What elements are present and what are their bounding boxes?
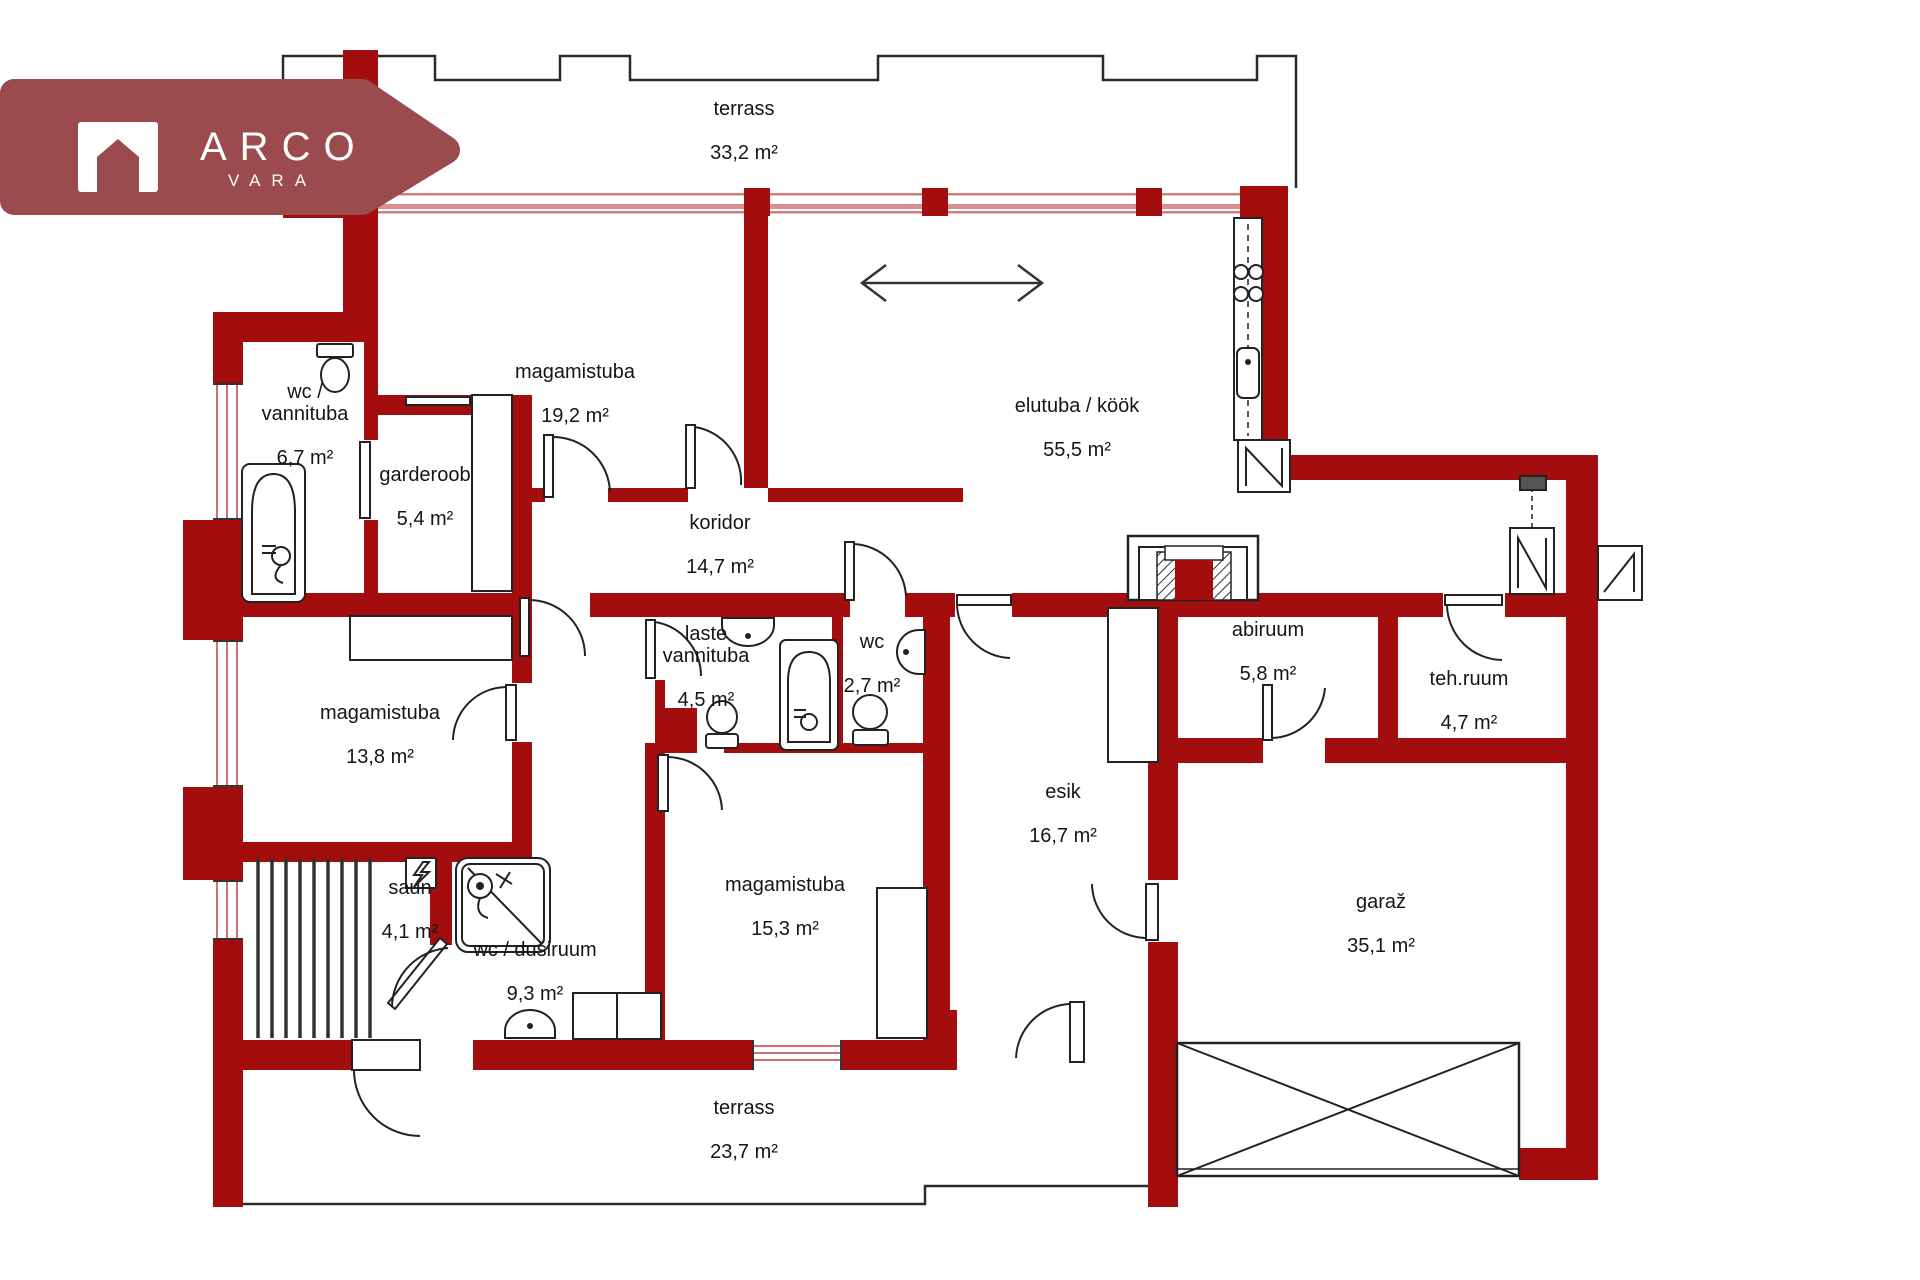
- wardrobe: [877, 888, 927, 1038]
- room-label-abiruum: abiruum 5,8 m²: [1232, 597, 1304, 707]
- room-label-laste-vannituba: laste vannituba 4,5 m²: [663, 601, 750, 733]
- room-area: 55,5 m²: [1015, 439, 1140, 461]
- room-name: wc / duširuum: [473, 939, 596, 961]
- room-name: garderoob: [379, 464, 470, 486]
- vent-box: [1598, 546, 1642, 600]
- brand-logo-icon: [78, 122, 158, 192]
- room-label-terrass-bottom: terrass 23,7 m²: [710, 1075, 778, 1185]
- room-label-teh-ruum: teh.ruum 4,7 m²: [1430, 646, 1509, 756]
- appliance-icon: [1238, 440, 1290, 492]
- room-name: wc: [844, 631, 901, 653]
- room-label-wc-dusiruum: wc / duširuum 9,3 m²: [473, 917, 596, 1027]
- room-area: 14,7 m²: [686, 556, 754, 578]
- sink-icon: [897, 630, 925, 674]
- room-area: 5,8 m²: [1232, 663, 1304, 685]
- top-window-band: [345, 192, 1240, 214]
- water-heater-icon: [1510, 476, 1554, 594]
- room-area: 4,5 m²: [663, 689, 750, 711]
- room-name: laste vannituba: [663, 623, 750, 667]
- room-label-esik: esik 16,7 m²: [1029, 759, 1097, 869]
- room-label-elutuba-kook: elutuba / köök 55,5 m²: [1015, 373, 1140, 483]
- wardrobe: [472, 395, 512, 591]
- room-name: abiruum: [1232, 619, 1304, 641]
- room-area: 23,7 m²: [710, 1141, 778, 1163]
- room-area: 15,3 m²: [725, 918, 845, 940]
- room-area: 16,7 m²: [1029, 825, 1097, 847]
- sliding-door-arrow: [862, 265, 1042, 301]
- room-area: 4,7 m²: [1430, 712, 1509, 734]
- closet-rod: [406, 397, 470, 405]
- room-area: 13,8 m²: [320, 746, 440, 768]
- room-name: terrass: [710, 98, 778, 120]
- garage-door: [1177, 1043, 1519, 1176]
- room-area: 4,1 m²: [382, 921, 439, 943]
- room-label-wc: wc 2,7 m²: [844, 609, 901, 719]
- sauna-benches: [258, 858, 370, 1038]
- room-label-magamistuba-19: magamistuba 19,2 m²: [515, 339, 635, 449]
- room-area: 35,1 m²: [1347, 935, 1415, 957]
- room-area: 19,2 m²: [515, 405, 635, 427]
- fireplace-icon: [1128, 536, 1258, 600]
- room-label-magamistuba-13: magamistuba 13,8 m²: [320, 680, 440, 790]
- wardrobe: [350, 616, 512, 660]
- room-name: terrass: [710, 1097, 778, 1119]
- room-area: 5,4 m²: [379, 508, 470, 530]
- bottom-wall-window: [752, 1040, 842, 1070]
- room-name: magamistuba: [320, 702, 440, 724]
- room-name: elutuba / köök: [1015, 395, 1140, 417]
- room-area: 9,3 m²: [473, 983, 596, 1005]
- room-name: garaž: [1347, 891, 1415, 913]
- room-area: 2,7 m²: [844, 675, 901, 697]
- room-label-saun: saun 4,1 m²: [382, 855, 439, 965]
- floor-plan-drawing: ARCO VARA: [0, 0, 1920, 1280]
- room-label-garderoob: garderoob 5,4 m²: [379, 442, 470, 552]
- room-name: koridor: [686, 512, 754, 534]
- brand-banner: ARCO VARA: [14, 93, 446, 201]
- room-label-magamistuba-15: magamistuba 15,3 m²: [725, 852, 845, 962]
- room-name: magamistuba: [725, 874, 845, 896]
- room-name: wc / vannituba: [262, 381, 349, 425]
- brand-title: ARCO: [200, 125, 368, 169]
- room-area: 6,7 m²: [262, 447, 349, 469]
- bathtub-icon: [780, 640, 838, 750]
- room-name: magamistuba: [515, 361, 635, 383]
- room-label-wc-vannituba: wc / vannituba 6,7 m²: [262, 359, 349, 491]
- bottom-terrace-edge: [243, 1186, 1148, 1204]
- room-name: teh.ruum: [1430, 668, 1509, 690]
- room-name: saun: [382, 877, 439, 899]
- floor-plan-page: ARCO VARA terrass 33,2 m² magamistuba 19…: [0, 0, 1920, 1280]
- room-area: 33,2 m²: [710, 142, 778, 164]
- room-label-garaz: garaž 35,1 m²: [1347, 869, 1415, 979]
- room-name: esik: [1029, 781, 1097, 803]
- brand-subtitle: VARA: [228, 171, 317, 190]
- room-label-koridor: koridor 14,7 m²: [686, 490, 754, 600]
- closet: [1108, 608, 1158, 762]
- kitchen-counter: [1234, 218, 1263, 440]
- room-label-terrass-top: terrass 33,2 m²: [710, 76, 778, 186]
